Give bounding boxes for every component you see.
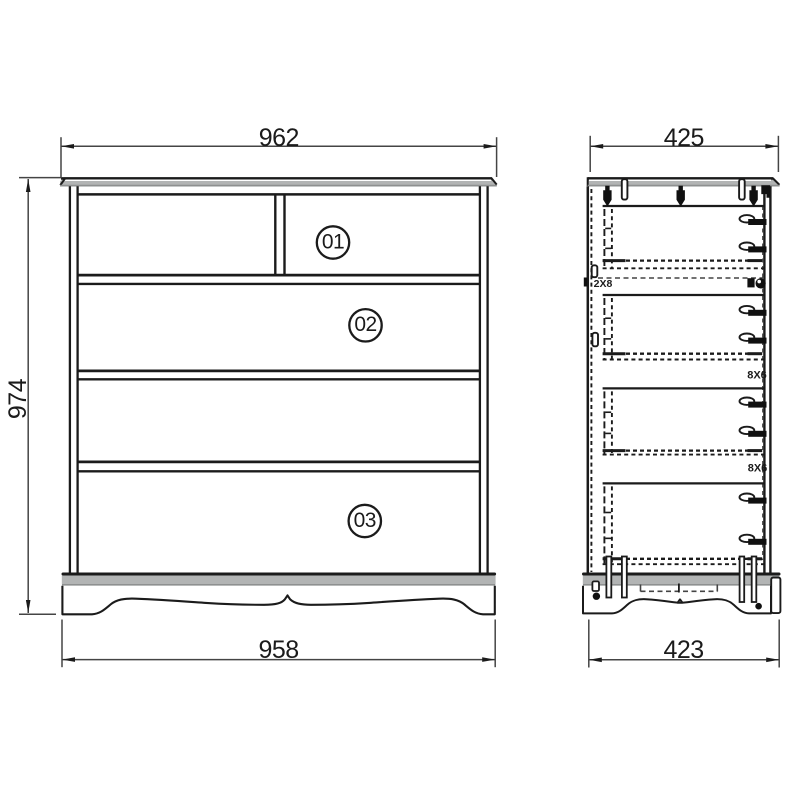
- svg-text:03: 03: [354, 509, 376, 532]
- svg-text:8X6: 8X6: [748, 463, 768, 475]
- svg-text:02: 02: [354, 313, 376, 336]
- svg-text:425: 425: [664, 124, 704, 152]
- svg-text:01: 01: [322, 230, 344, 253]
- svg-text:2X8: 2X8: [594, 278, 613, 290]
- svg-text:974: 974: [4, 378, 32, 419]
- svg-text:8X6: 8X6: [747, 370, 767, 382]
- svg-text:423: 423: [663, 636, 703, 664]
- svg-text:958: 958: [258, 636, 298, 664]
- svg-text:962: 962: [259, 124, 299, 152]
